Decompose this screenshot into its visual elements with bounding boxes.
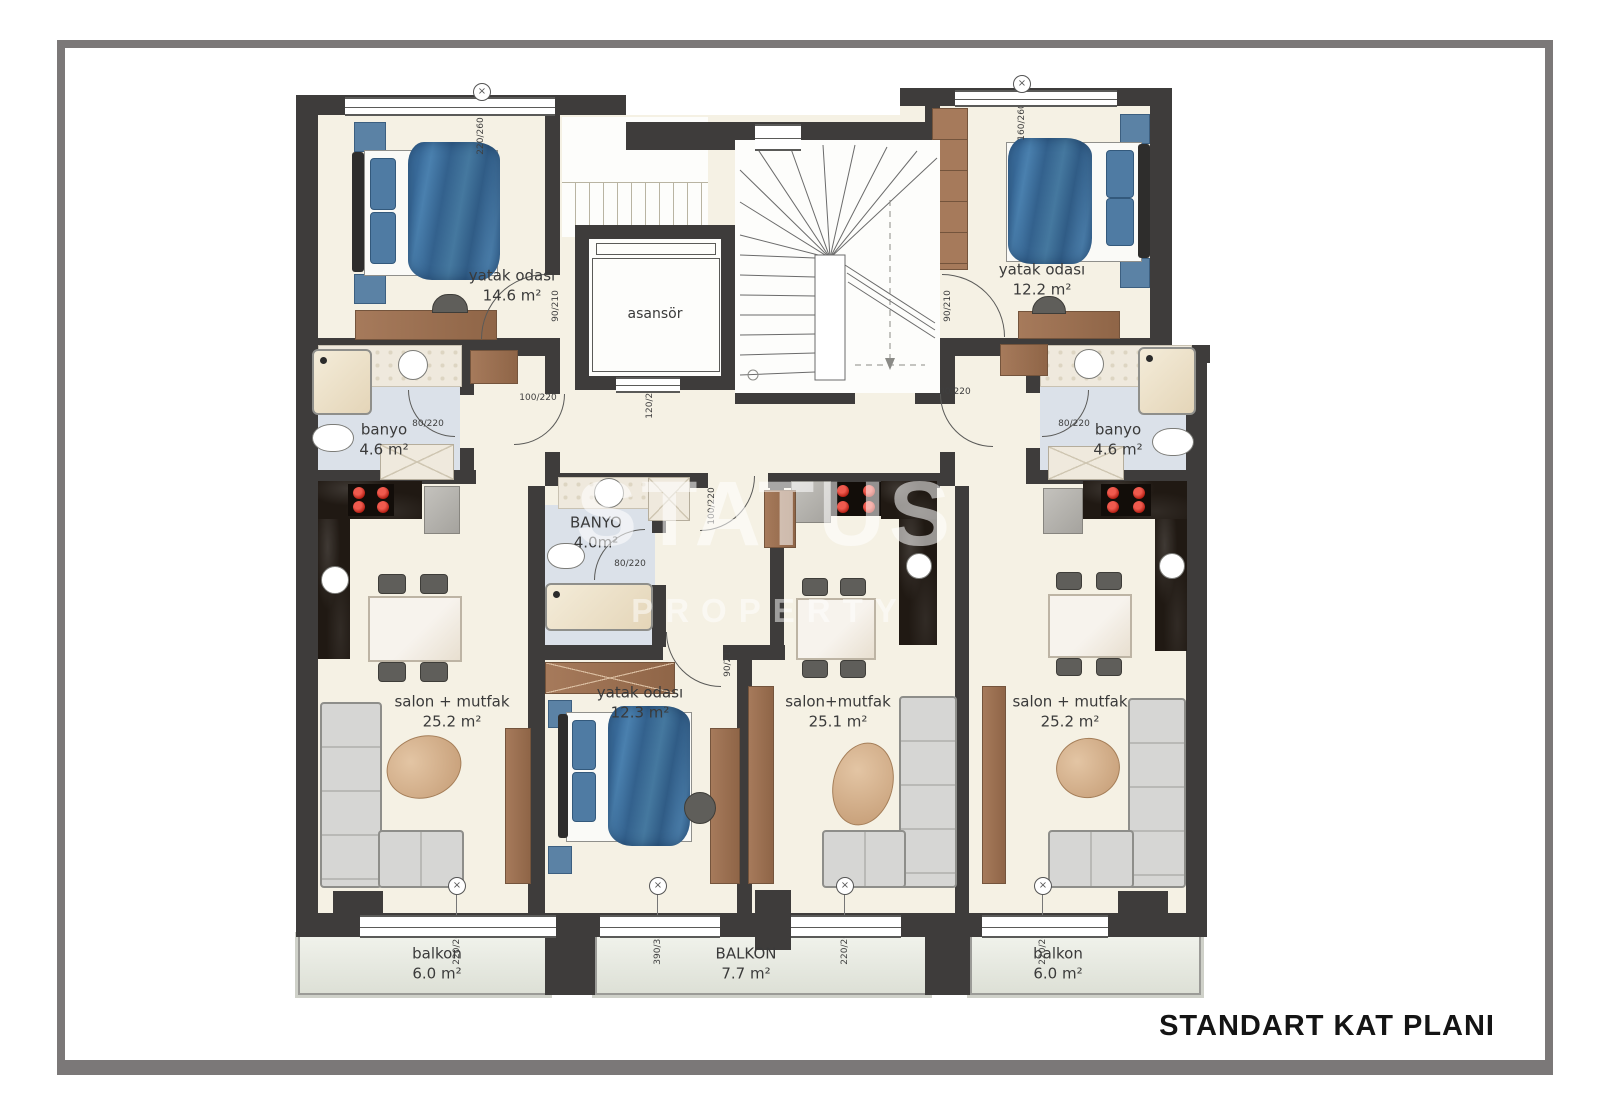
floor-plan-page: asansör xyxy=(0,0,1600,1107)
dining-table-right xyxy=(1048,594,1132,658)
dim-tick xyxy=(844,893,845,915)
kitchenL-stove xyxy=(348,484,394,516)
bathR-shower xyxy=(1138,347,1196,415)
chair xyxy=(1056,572,1082,590)
window-top-right xyxy=(955,90,1117,107)
sofa-middle xyxy=(899,696,957,888)
room-label-bathroom-left: banyo 4.6 m² xyxy=(359,421,408,460)
pillow xyxy=(572,720,596,770)
pillow xyxy=(370,158,396,210)
dim-tick xyxy=(456,893,457,915)
chair xyxy=(420,662,448,682)
room-label-living-middle: salon+mutfak 25.1 m² xyxy=(785,693,891,732)
staircase xyxy=(735,140,940,393)
elevator-name: asansör xyxy=(628,305,683,323)
dining-table-left xyxy=(368,596,462,662)
dim-tick xyxy=(1042,893,1043,915)
desk-chair xyxy=(684,792,716,824)
nightstand xyxy=(354,122,386,152)
balcony-divider-right xyxy=(925,925,970,995)
elevator-wall-left xyxy=(575,225,589,390)
ac-unit-right xyxy=(1118,891,1168,915)
ac-unit-left xyxy=(333,891,383,915)
watermark-line1: STATUS xyxy=(555,462,975,567)
wall-corridorL-a xyxy=(545,356,560,394)
room-label-bedroom-top-left: yatak odası 14.6 m² xyxy=(469,267,555,306)
dim-door-bedroomM: 90/210 xyxy=(723,645,733,677)
watermark-text-1: STATUS xyxy=(576,463,954,565)
window-marker-icon: × xyxy=(448,877,466,895)
elevator-counterweight xyxy=(596,243,716,255)
window-bottom-middle xyxy=(791,915,901,938)
pillow xyxy=(572,772,596,822)
chair xyxy=(1096,572,1122,590)
chair xyxy=(840,660,866,678)
nightstand xyxy=(1120,258,1150,288)
desk-top-right xyxy=(1018,311,1120,339)
room-label-living-left: salon + mutfak 25.2 m² xyxy=(394,693,509,732)
nightstand xyxy=(1120,114,1150,144)
chair xyxy=(378,662,406,682)
tv-unit-left xyxy=(505,728,531,884)
elevator-wall-right xyxy=(721,225,735,390)
window-stair-landing xyxy=(755,124,801,151)
chair xyxy=(1056,658,1082,676)
chair xyxy=(1096,658,1122,676)
sofa-left xyxy=(320,702,382,888)
window-bottom-right xyxy=(982,915,1108,938)
dim-door-bathL: 80/220 xyxy=(412,419,444,429)
pillar-mid-bottom xyxy=(755,890,791,950)
window-bottom-bedroom xyxy=(600,915,720,938)
room-label-balcony-middle: BALKON 7.7 m² xyxy=(716,945,777,984)
pillow xyxy=(370,212,396,264)
kitchenR-sink xyxy=(1159,553,1185,579)
chair xyxy=(420,574,448,594)
kitchenL-appliance xyxy=(424,486,460,534)
sofa-right-chaise xyxy=(1048,830,1134,888)
kitchenR-stove xyxy=(1101,484,1151,516)
sofa-right xyxy=(1128,698,1186,888)
dim-window-top-right: 160/260 xyxy=(1017,103,1027,140)
page-title: STANDART KAT PLANI xyxy=(1130,1010,1495,1043)
kitchenR-counter-side xyxy=(1155,519,1187,651)
desk-top-left xyxy=(355,310,497,340)
window-marker-icon: × xyxy=(1013,75,1031,93)
elevator-wall-top xyxy=(575,225,735,239)
headboard xyxy=(558,714,568,838)
window-bottom-left xyxy=(360,915,556,938)
watermark-text-2: PROPERTY xyxy=(631,592,909,629)
bathL-sink xyxy=(398,350,428,380)
dim-door-bedroomTL: 90/210 xyxy=(551,290,561,322)
window-marker-icon: × xyxy=(649,877,667,895)
kitchenL-sink xyxy=(321,566,349,594)
wall-midbed-top-a xyxy=(543,645,663,660)
bathR-sink xyxy=(1074,349,1104,379)
bathR-toilet xyxy=(1152,428,1194,456)
tv-unit-right xyxy=(982,686,1006,884)
sofa-middle-chaise xyxy=(822,830,906,888)
room-label-bedroom-middle: yatak odası 12.3 m² xyxy=(597,684,683,723)
nightstand xyxy=(548,846,572,874)
pillow xyxy=(1106,150,1134,198)
chair xyxy=(378,574,406,594)
window-marker-icon: × xyxy=(1034,877,1052,895)
pillow xyxy=(1106,198,1134,246)
elevator-label: asansör xyxy=(628,305,683,323)
wall-right-upper xyxy=(1150,88,1172,360)
dim-door-bathR: 80/220 xyxy=(1058,419,1090,429)
window-marker-icon: × xyxy=(473,83,491,101)
elevator-door xyxy=(616,377,680,393)
wall-left-outer xyxy=(296,95,318,935)
headboard xyxy=(1138,144,1150,258)
dim-door-bedroomTR: 90/210 xyxy=(943,290,953,322)
dim-tick xyxy=(657,893,658,915)
kitchenR-appliance xyxy=(1043,488,1083,534)
window-top-left xyxy=(345,97,555,116)
headboard xyxy=(352,152,364,272)
dim-window-top-left: 220/260 xyxy=(476,117,486,154)
room-label-living-right: salon + mutfak 25.2 m² xyxy=(1012,693,1127,732)
blanket xyxy=(1008,138,1092,264)
tv-unit-middle xyxy=(748,686,774,884)
room-label-bathroom-right: banyo 4.6 m² xyxy=(1093,421,1142,460)
wall-bedroomTL-right xyxy=(545,115,560,275)
wall-stairs-bottom-a xyxy=(735,392,855,404)
watermark-line2: PROPERTY xyxy=(615,592,925,630)
room-label-bedroom-top-right: yatak odası 12.2 m² xyxy=(999,261,1085,300)
blanket xyxy=(608,706,690,846)
dim-door-entryL: 100/220 xyxy=(519,393,556,403)
balcony-right xyxy=(970,935,1201,995)
window-marker-icon: × xyxy=(836,877,854,895)
bathL-toilet xyxy=(312,424,354,452)
bathL-shower xyxy=(312,349,372,415)
entry-cabinet-right xyxy=(1000,344,1048,376)
entry-cabinet-left xyxy=(470,350,518,384)
chair xyxy=(802,660,828,678)
blanket xyxy=(408,142,500,280)
nightstand xyxy=(354,274,386,304)
